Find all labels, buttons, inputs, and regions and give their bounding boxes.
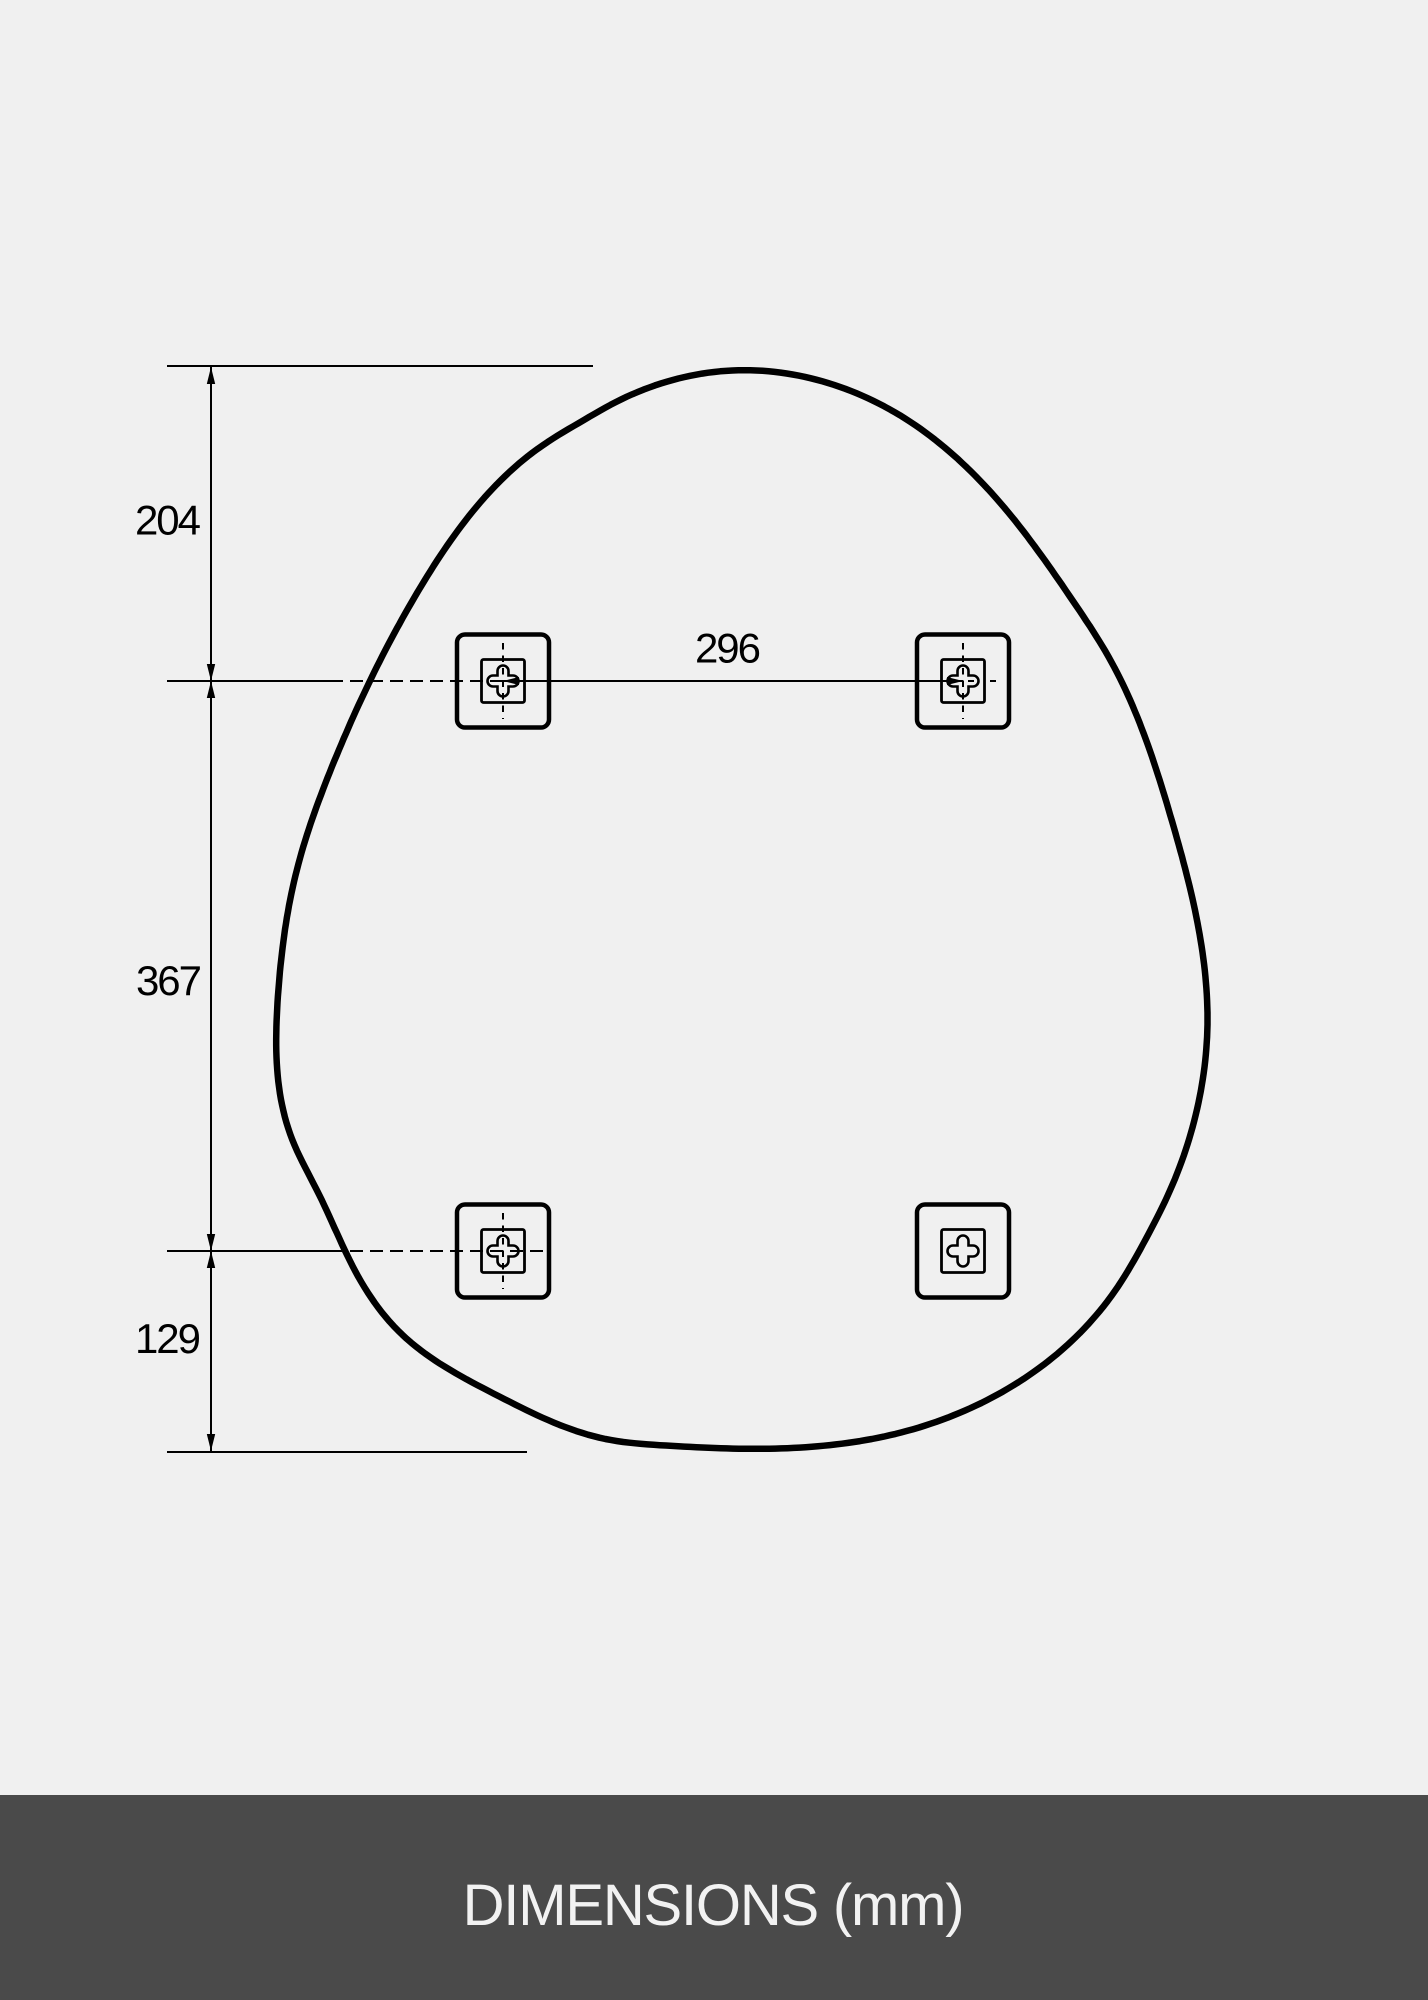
svg-text:367: 367 [136, 957, 201, 1004]
svg-text:129: 129 [135, 1315, 200, 1362]
svg-text:296: 296 [695, 625, 760, 672]
svg-text:DIMENSIONS (mm): DIMENSIONS (mm) [463, 1873, 964, 1938]
svg-text:204: 204 [135, 497, 201, 544]
